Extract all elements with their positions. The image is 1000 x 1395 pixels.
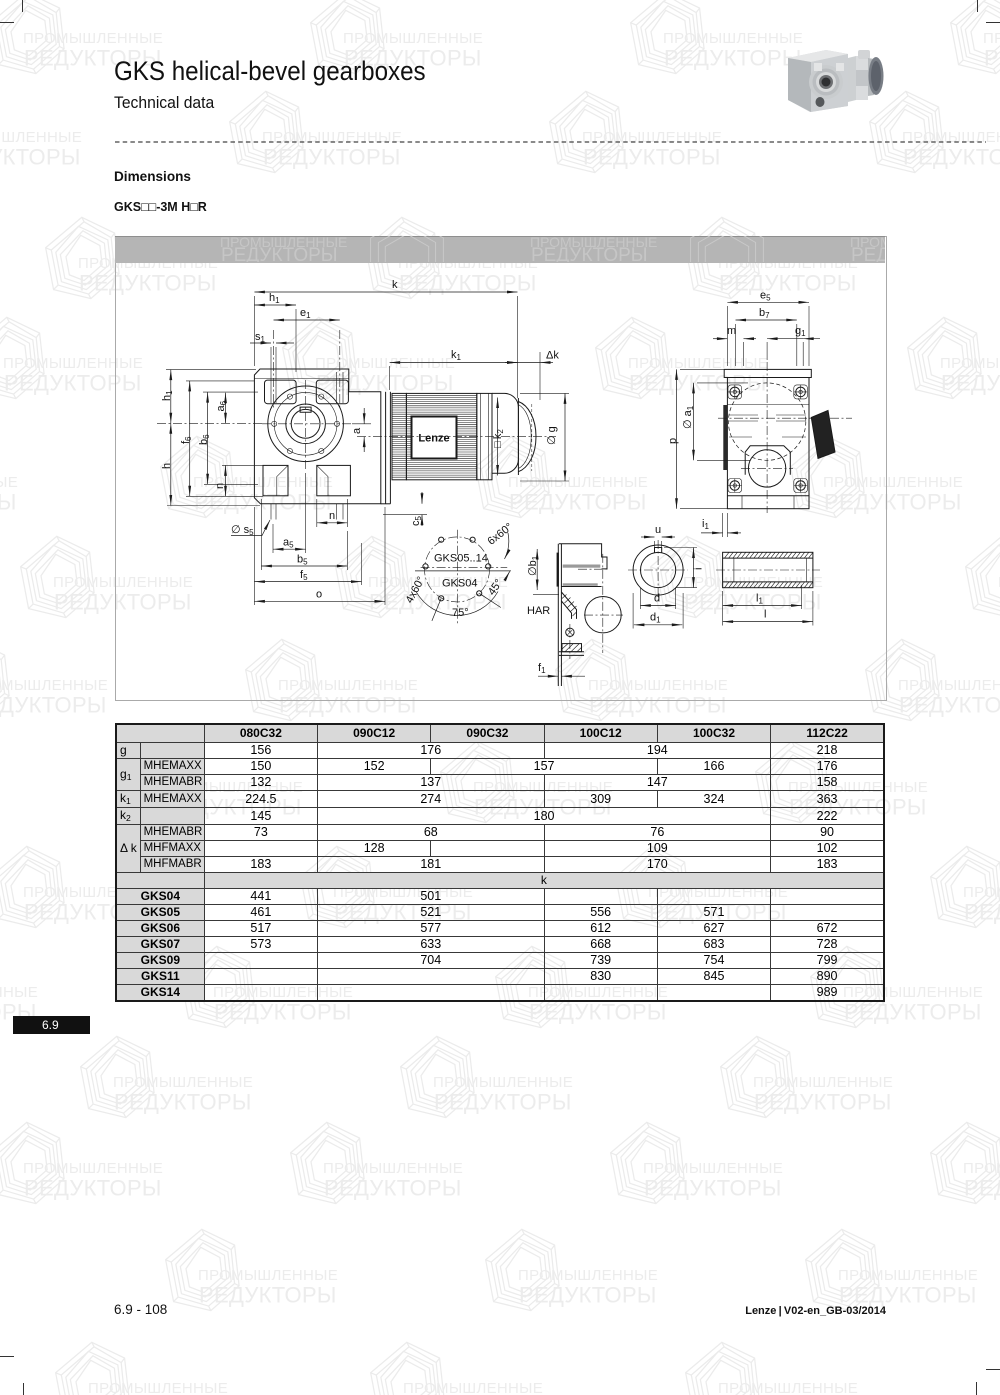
svg-text:l: l — [764, 609, 766, 621]
svg-text:m: m — [727, 325, 736, 337]
svg-text:d: d — [654, 593, 660, 605]
svg-text:GKS04: GKS04 — [442, 578, 477, 590]
svg-text:f1: f1 — [538, 662, 546, 675]
svg-text:k: k — [392, 279, 398, 291]
svg-text:p: p — [667, 438, 679, 444]
svg-text:g1: g1 — [795, 325, 806, 338]
svg-text:f5: f5 — [300, 569, 308, 582]
svg-text:e1: e1 — [300, 307, 311, 320]
svg-text:□ k2: □ k2 — [492, 429, 505, 448]
svg-text:Lenze: Lenze — [418, 433, 449, 445]
svg-text:c5: c5 — [410, 516, 423, 527]
svg-text:f6: f6 — [180, 436, 193, 444]
svg-text:4x60°: 4x60° — [404, 575, 428, 606]
svg-text:k1: k1 — [451, 349, 462, 362]
svg-text:h1: h1 — [161, 390, 174, 401]
svg-text:∅ s5: ∅ s5 — [231, 524, 254, 537]
svg-text:i: i — [693, 568, 705, 570]
svg-text:n: n — [329, 510, 335, 522]
svg-text:75°: 75° — [452, 607, 469, 619]
svg-text:u: u — [655, 524, 661, 536]
svg-text:a: a — [351, 427, 363, 434]
svg-text:6x60°: 6x60° — [485, 521, 515, 548]
svg-text:HAR: HAR — [527, 605, 550, 617]
svg-text:o: o — [316, 589, 322, 601]
svg-text:∅ a1: ∅ a1 — [682, 405, 695, 429]
svg-text:∅ g: ∅ g — [546, 426, 558, 445]
svg-text:s1: s1 — [255, 331, 266, 344]
svg-text:a5: a5 — [283, 537, 294, 550]
svg-text:b5: b5 — [297, 554, 308, 567]
svg-text:a6: a6 — [215, 400, 228, 411]
svg-text:∅b1: ∅b1 — [527, 555, 540, 576]
svg-text:Δk: Δk — [546, 350, 559, 362]
svg-text:d1: d1 — [650, 612, 661, 625]
svg-text:l1: l1 — [756, 593, 763, 606]
svg-text:b7: b7 — [759, 307, 770, 320]
svg-text:e5: e5 — [760, 290, 771, 303]
svg-text:i1: i1 — [702, 518, 709, 531]
svg-text:h: h — [161, 463, 173, 469]
svg-text:b6: b6 — [198, 434, 211, 445]
svg-text:GKS05..14: GKS05..14 — [434, 553, 488, 565]
svg-text:n: n — [214, 483, 226, 489]
svg-text:45°: 45° — [486, 577, 505, 598]
svg-text:h1: h1 — [269, 292, 280, 305]
